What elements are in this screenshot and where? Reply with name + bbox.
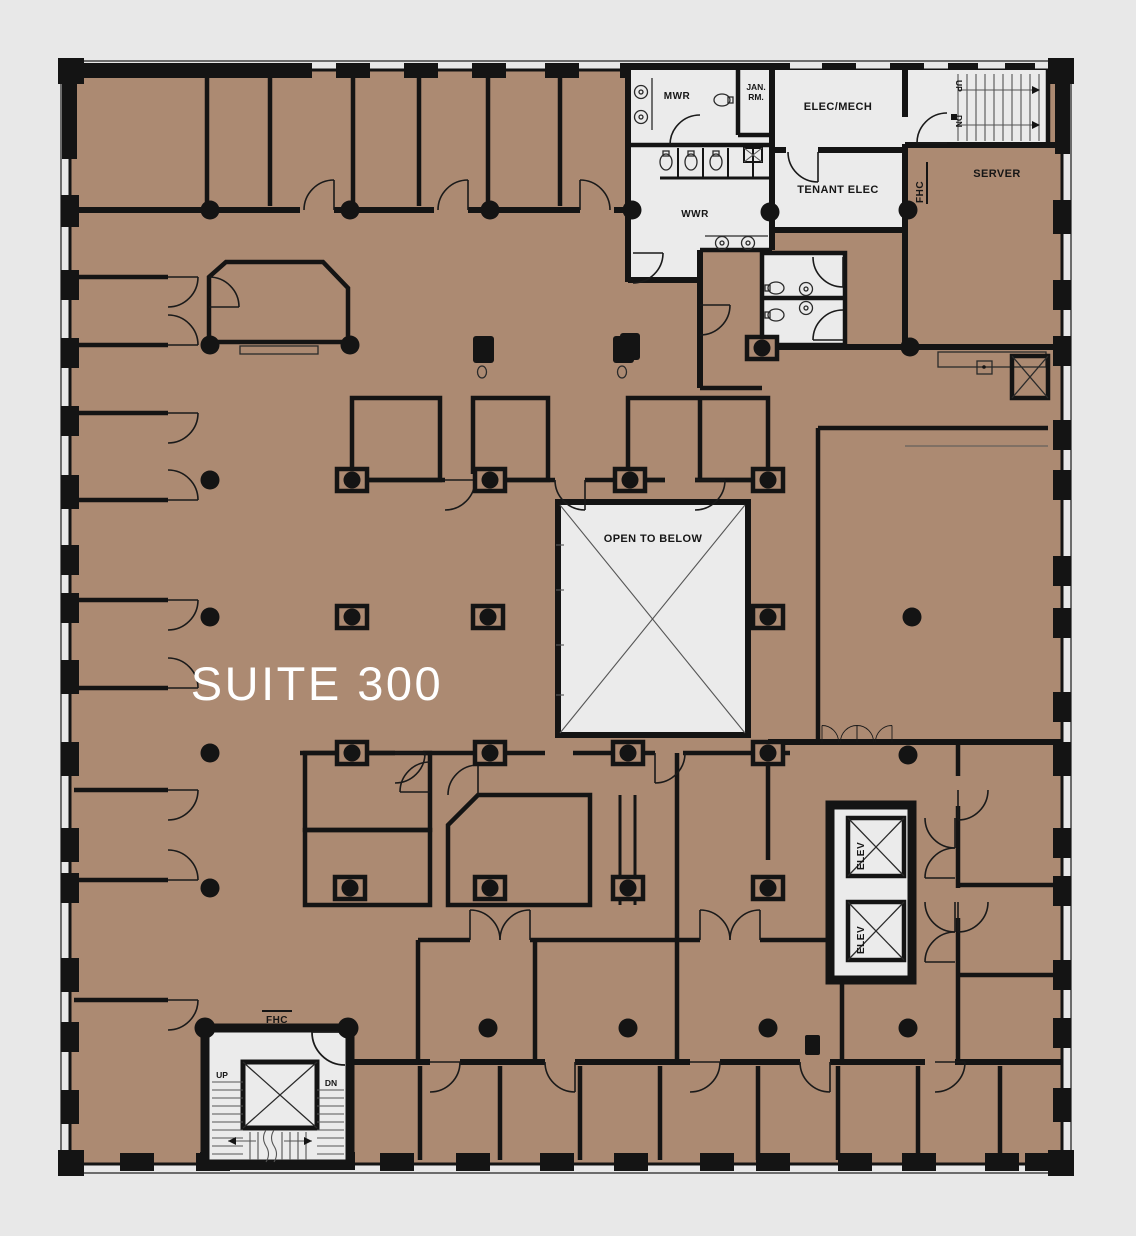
fhc-label-east: FHC: [915, 181, 926, 203]
room-label-jan: JAN.: [746, 82, 765, 92]
room-label-jan-rm: RM.: [748, 92, 764, 102]
suite-label: SUITE 300: [191, 657, 443, 710]
open-to-below-label: OPEN TO BELOW: [604, 533, 703, 545]
room-label-mwr: MWR: [664, 91, 691, 102]
elevator-label-1: ELEV: [856, 842, 867, 870]
elevator-label-2: ELEV: [856, 926, 867, 954]
room-label-server: SERVER: [973, 168, 1020, 180]
elevator-core: [830, 805, 912, 980]
floor-plan-page: SUITE 300 MWR JAN. RM. WWR ELEC/MECH TEN…: [0, 0, 1136, 1236]
room-label-tenant-elec: TENANT ELEC: [797, 184, 878, 196]
fhc-label-bottom: FHC: [266, 1015, 288, 1026]
stairwell-bottom-left: [205, 1028, 350, 1164]
stair-up-label-bl: UP: [216, 1070, 228, 1080]
stair-dn-label-tr: DN: [954, 115, 964, 127]
room-label-elec-mech: ELEC/MECH: [804, 101, 872, 113]
room-label-wwr: WWR: [681, 209, 709, 220]
stair-up-label-tr: UP: [954, 80, 964, 92]
floor-plan-drawing: SUITE 300 MWR JAN. RM. WWR ELEC/MECH TEN…: [0, 0, 1136, 1236]
drinking-fountain-icon: [473, 336, 494, 363]
stair-dn-label-bl: DN: [325, 1078, 337, 1088]
